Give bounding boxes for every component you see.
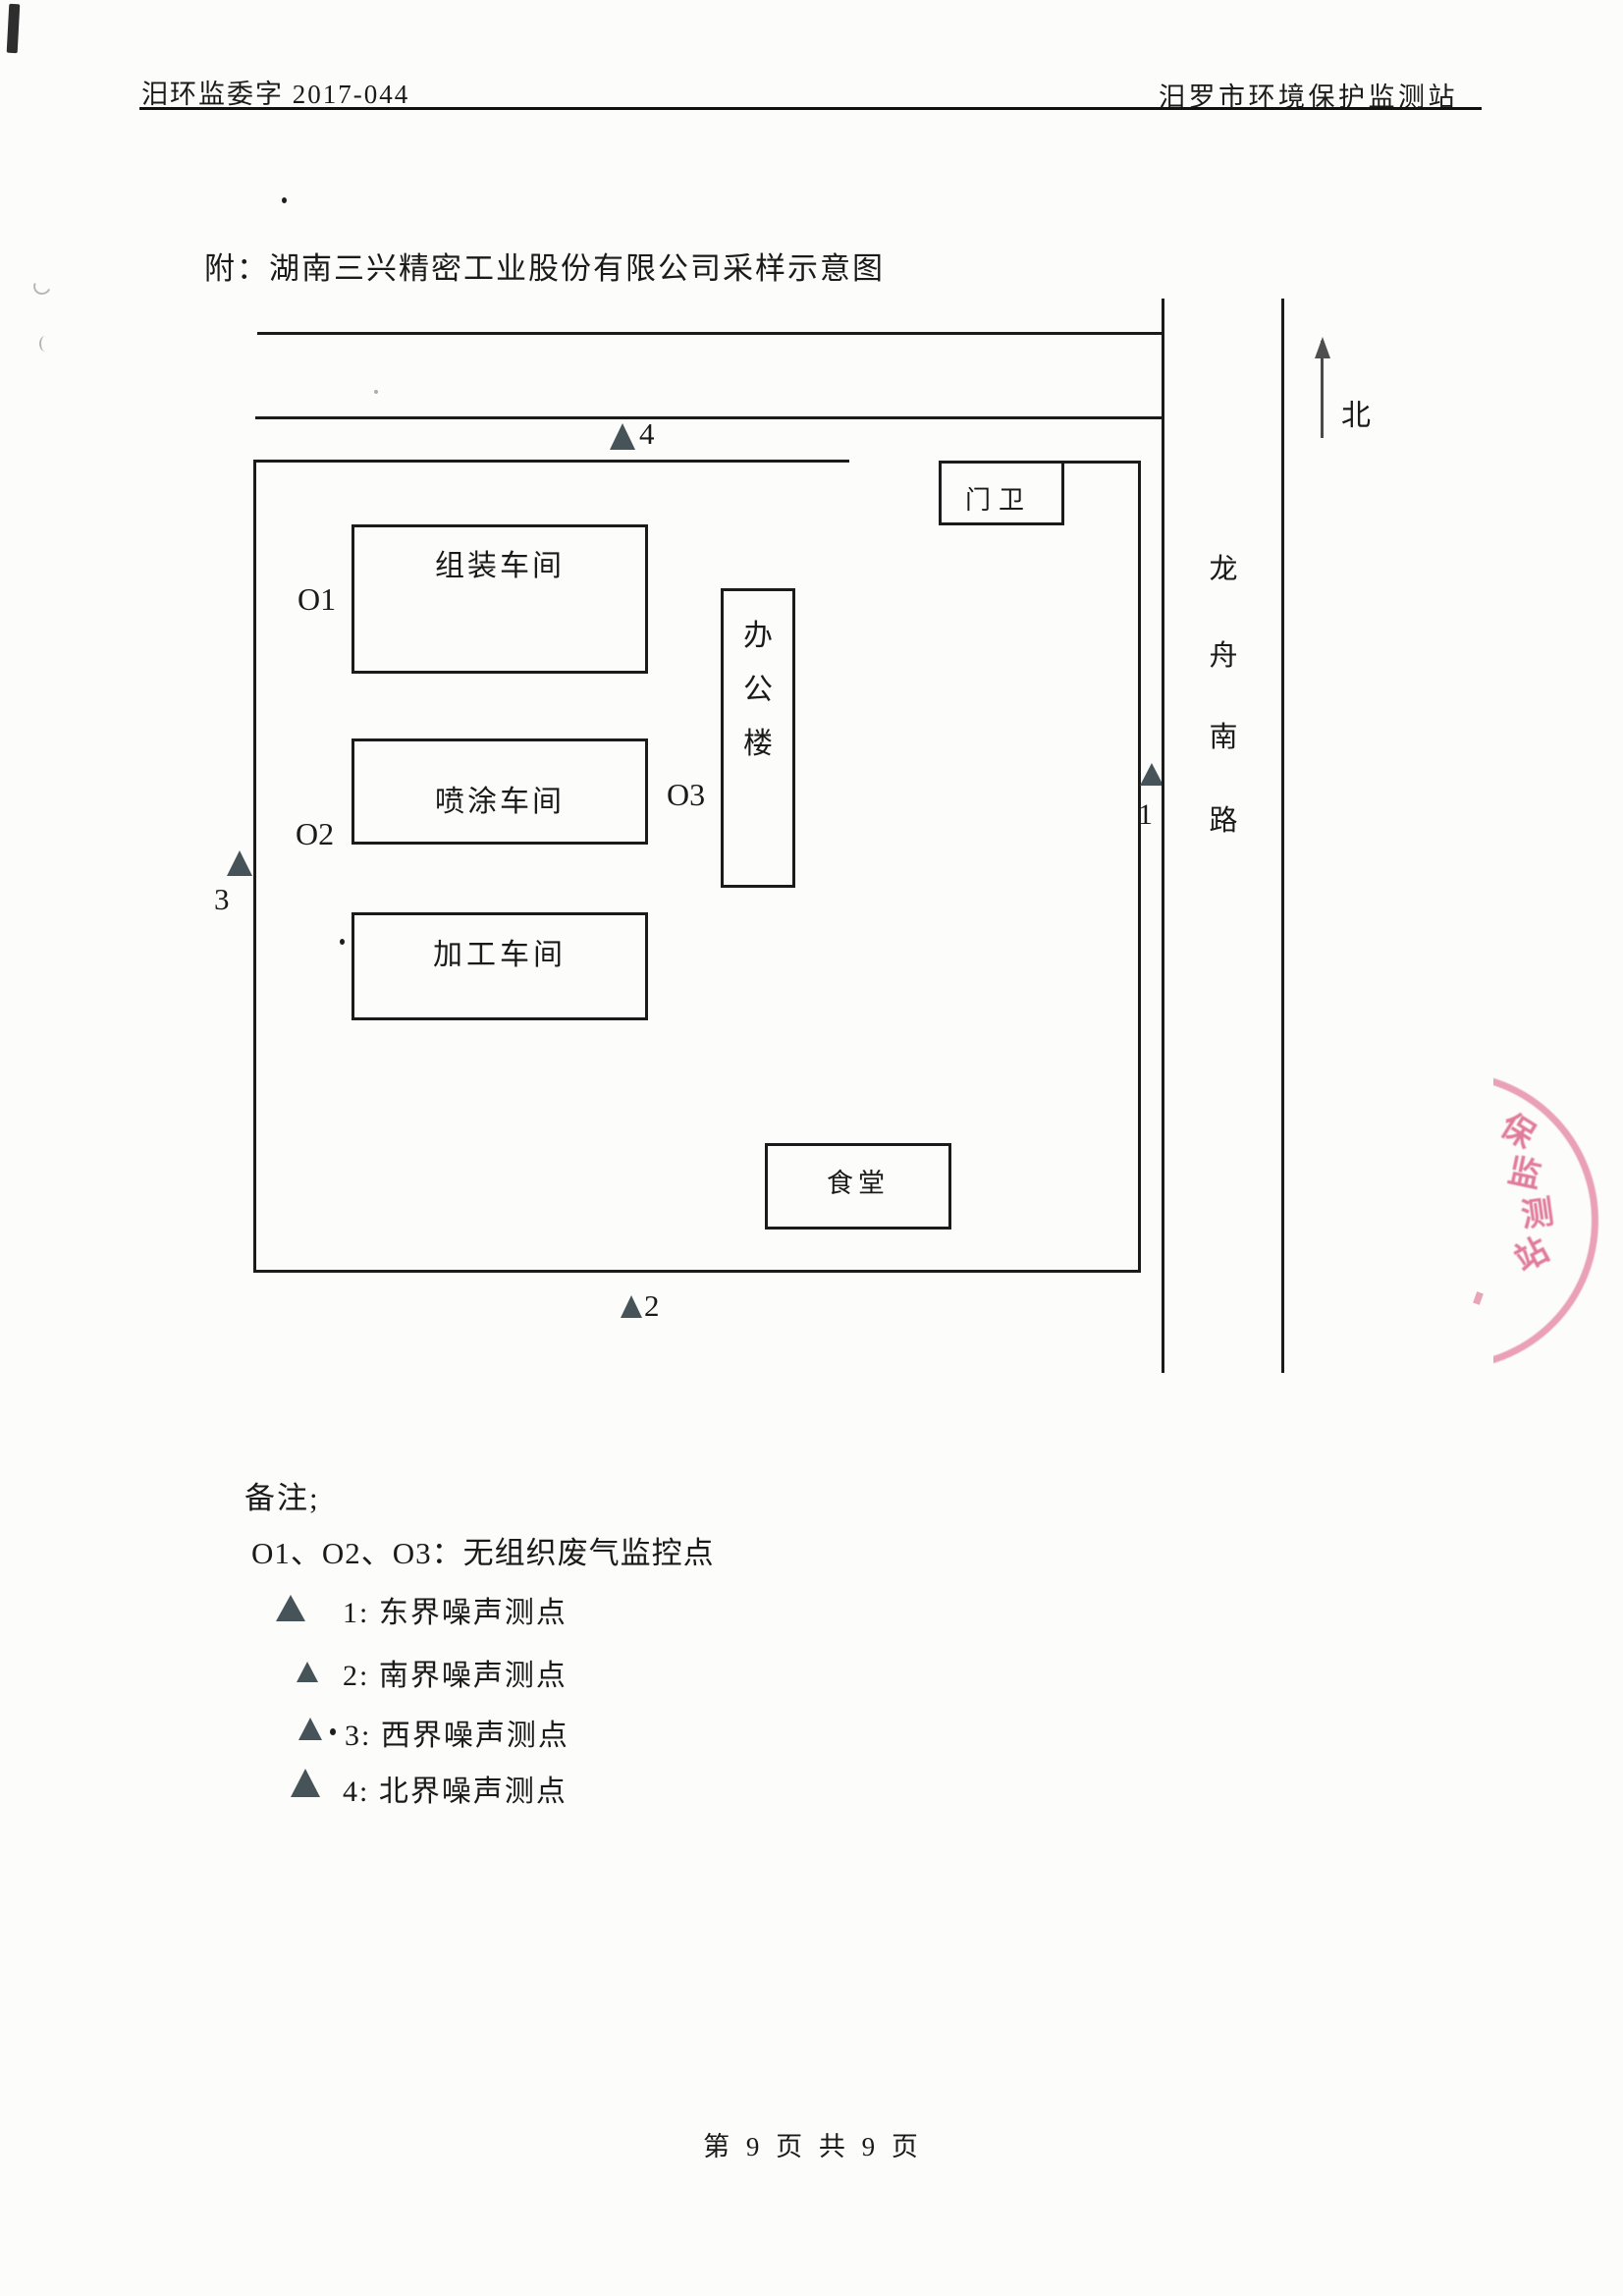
- legend-item-4-num: 4:: [343, 1776, 369, 1808]
- road-name-char-4: 路: [1207, 797, 1240, 839]
- factory-boundary-north-right: [1064, 461, 1141, 464]
- paint-workshop-label: 喷涂车间: [354, 777, 645, 820]
- gas-point-o3-label: O3: [667, 777, 705, 813]
- ink-dot: [330, 1728, 336, 1735]
- ink-dot: [340, 939, 345, 945]
- processing-workshop-box: 加工车间: [352, 912, 648, 1020]
- legend-item-3-num: 3:: [345, 1720, 371, 1752]
- legend-triangle-icon-1: [276, 1592, 305, 1621]
- legend-item-3-label: 西界噪声测点: [381, 1720, 569, 1752]
- document-number: 汨环监委字 2017-044: [141, 73, 409, 111]
- factory-boundary-west: [253, 460, 256, 1273]
- office-char-3: 楼: [743, 719, 773, 762]
- noise-point-3-triangle-icon: [227, 847, 252, 876]
- noise-point-1-triangle-icon: [1140, 760, 1163, 786]
- canteen-label: 食堂: [768, 1162, 948, 1200]
- guard-house-box: 门卫: [939, 461, 1064, 525]
- legend-item-4-label: 北界噪声测点: [379, 1776, 568, 1808]
- legend-triangle-icon-2: [297, 1659, 318, 1682]
- legend-triangle-icon-3: [298, 1715, 322, 1740]
- north-road-line-inner: [255, 416, 1163, 419]
- noise-point-4-triangle-icon: [610, 420, 635, 450]
- header-rule: [139, 107, 1482, 110]
- paint-workshop-box: 喷涂车间: [352, 738, 648, 845]
- processing-workshop-label: 加工车间: [354, 930, 645, 973]
- road-line-west: [1162, 299, 1164, 1373]
- road-name-char-3: 南: [1207, 714, 1240, 755]
- scan-artifact: [31, 275, 54, 297]
- scanned-document-page: 汨环监委字 2017-044 汨罗市环境保护监测站 附：湖南三兴精密工业股份有限…: [0, 0, 1623, 2296]
- page-title: 附：湖南三兴精密工业股份有限公司采样示意图: [204, 244, 885, 288]
- office-building-label: 办 公 楼: [724, 591, 792, 762]
- legend-item-1: 1: 东界噪声测点: [343, 1588, 568, 1631]
- noise-point-2-label: 2: [644, 1288, 660, 1324]
- legend-item-3: 3: 西界噪声测点: [345, 1711, 569, 1754]
- road-line-east: [1281, 299, 1284, 1373]
- scan-artifact: [374, 390, 378, 394]
- factory-boundary-north-left: [253, 460, 849, 463]
- factory-boundary-south: [253, 1270, 1141, 1273]
- noise-point-2-triangle-icon: [621, 1292, 642, 1318]
- north-label: 北: [1341, 391, 1371, 434]
- guard-house-label: 门卫: [936, 480, 1061, 517]
- assembly-workshop-box: 组装车间: [352, 524, 648, 674]
- noise-point-1-label: 1: [1138, 798, 1153, 832]
- assembly-workshop-label: 组装车间: [354, 541, 645, 584]
- north-arrow-icon: [1315, 334, 1330, 358]
- north-road-line-outer: [257, 332, 1163, 335]
- office-char-2: 公: [743, 665, 773, 708]
- legend-item-4: 4: 北界噪声测点: [343, 1767, 568, 1810]
- legend-item-2-label: 南界噪声测点: [379, 1660, 568, 1692]
- canteen-box: 食堂: [765, 1143, 951, 1230]
- factory-boundary-east: [1138, 461, 1141, 1273]
- legend-item-2: 2: 南界噪声测点: [343, 1651, 568, 1694]
- legend-item-1-label: 东界噪声测点: [379, 1597, 568, 1629]
- legend-gas-points: O1、O2、O3：无组织废气监控点: [251, 1528, 715, 1572]
- page-number: 第 9 页 共 9 页: [0, 2125, 1623, 2163]
- legend-heading: 备注;: [244, 1473, 320, 1517]
- road-name-char-2: 舟: [1207, 632, 1240, 674]
- office-char-1: 办: [743, 611, 773, 654]
- scan-artifact: [7, 4, 21, 54]
- red-seal: 保 监 测 站: [1493, 1064, 1623, 1373]
- noise-point-3-label: 3: [214, 882, 230, 917]
- noise-point-4-label: 4: [639, 416, 655, 452]
- legend-item-2-num: 2:: [343, 1660, 369, 1692]
- road-name-char-1: 龙: [1207, 546, 1240, 587]
- office-building-box: 办 公 楼: [721, 588, 795, 888]
- gas-point-o2-label: O2: [296, 816, 334, 852]
- legend-item-1-num: 1:: [343, 1597, 369, 1629]
- seal-fragment: [1473, 1291, 1484, 1305]
- legend-triangle-icon-4: [291, 1766, 320, 1797]
- scan-artifact: [39, 336, 51, 352]
- ink-dot: [282, 197, 287, 203]
- gas-point-o1-label: O1: [298, 581, 336, 618]
